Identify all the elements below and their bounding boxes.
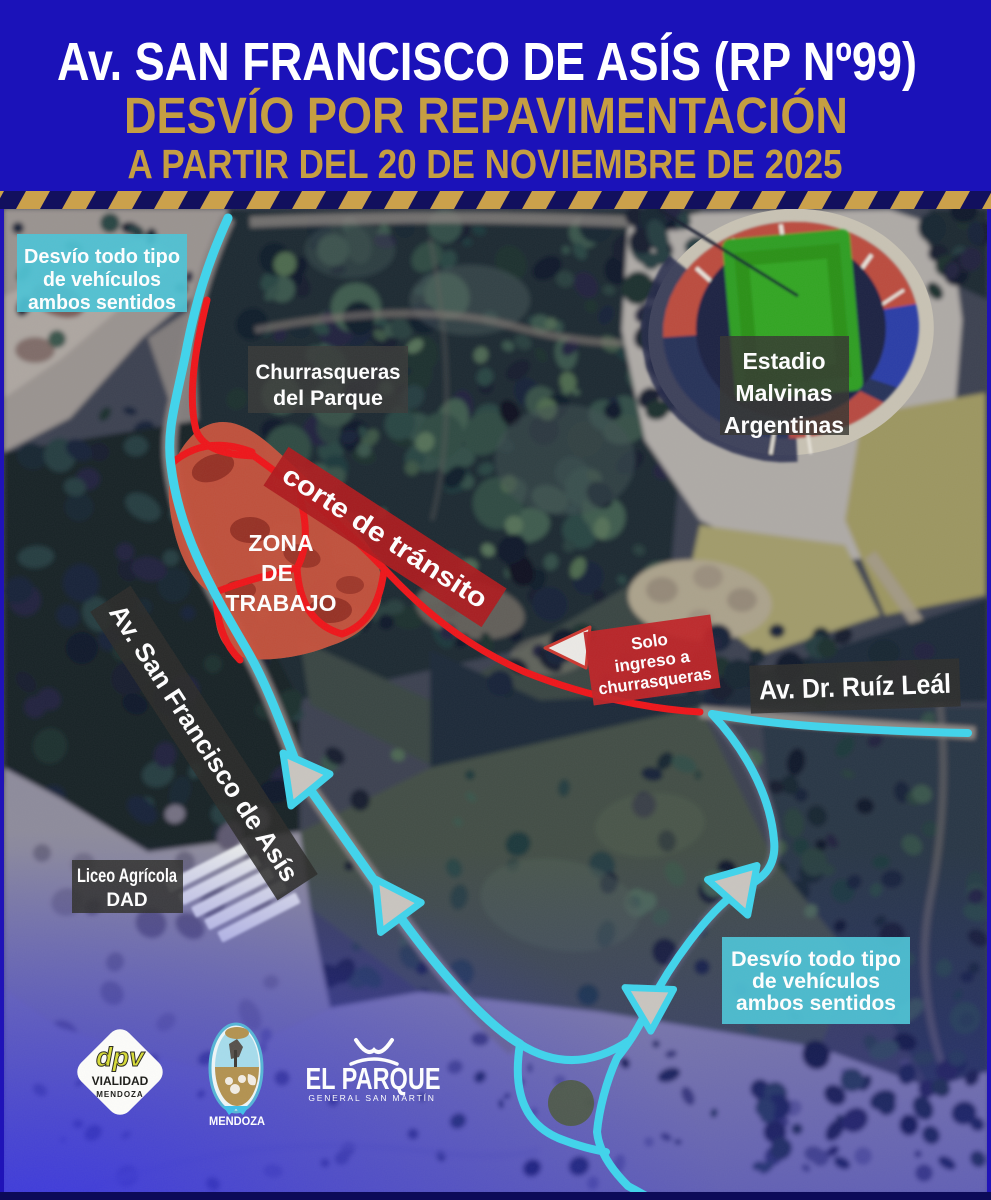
svg-text:Av. SAN FRANCISCO DE ASÍS (RP: Av. SAN FRANCISCO DE ASÍS (RP Nº99) bbox=[57, 32, 917, 92]
svg-text:A PARTIR DEL 20 DE NOVIEMBRE D: A PARTIR DEL 20 DE NOVIEMBRE DE 2025 bbox=[128, 141, 843, 187]
svg-text:DESVÍO POR REPAVIMENTACIÓN: DESVÍO POR REPAVIMENTACIÓN bbox=[124, 87, 848, 144]
